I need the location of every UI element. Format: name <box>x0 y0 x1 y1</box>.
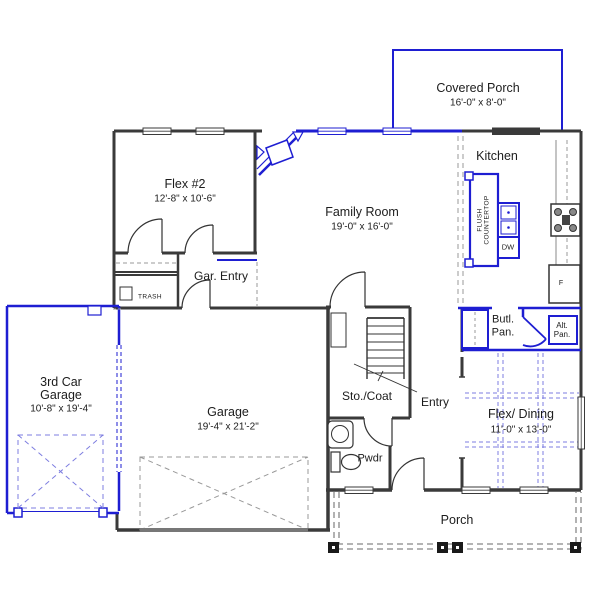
range-cooktop <box>551 204 580 236</box>
pwdr-label: Pwdr <box>357 453 382 466</box>
covered-porch-label: Covered Porch <box>436 81 519 95</box>
refrigerator-box <box>549 265 580 303</box>
flush-countertop-line1: FLUSH <box>477 208 484 231</box>
flex-dining-label: Flex/ Dining <box>488 407 554 421</box>
flex-dining-dims: 11'-0" x 13'-0" <box>491 424 552 436</box>
flush-countertop-note: FLUSH COUNTERTOP <box>477 195 492 244</box>
kitchen-island <box>465 172 519 267</box>
windows <box>143 128 585 494</box>
kitchen-window-solid <box>492 128 540 136</box>
trash-closet-fixture <box>120 287 132 300</box>
flex2-dims: 12'-8" x 10'-6" <box>154 193 216 205</box>
porch-posts <box>328 542 581 553</box>
third-garage-dims: 10'-8" x 19'-4" <box>30 403 92 415</box>
flex2-label: Flex #2 <box>165 177 206 191</box>
dishwasher-label: DW <box>502 244 515 253</box>
trash-label: TRASH <box>138 293 162 300</box>
butlers-pantry-line2: Pan. <box>492 326 515 338</box>
butlers-pantry-label: Butl. Pan. <box>492 313 515 338</box>
entry-label: Entry <box>421 396 449 410</box>
kitchen-label: Kitchen <box>476 149 518 163</box>
door-swings <box>128 219 424 490</box>
butlers-pantry-line1: Butl. <box>492 313 514 325</box>
sto-coat-label: Sto./Coat <box>342 390 392 404</box>
corner-fireplace <box>257 132 303 175</box>
flush-countertop-line2: COUNTERTOP <box>484 195 491 244</box>
alt-pantry-line2: Pan. <box>554 330 570 339</box>
family-room-dims: 19'-0" x 16'-0" <box>331 221 393 233</box>
pantry-door-swing <box>523 317 546 346</box>
third-garage-label-line2: Garage <box>40 388 82 402</box>
garage-label: Garage <box>207 405 249 419</box>
family-room-label: Family Room <box>325 205 399 219</box>
alt-pantry-line1: Alt. <box>556 321 568 330</box>
refrigerator-label: F <box>559 280 563 288</box>
covered-porch-dims: 16'-0" x 8'-0" <box>450 97 506 109</box>
staircase <box>331 313 417 392</box>
floorplan-canvas: Covered Porch 16'-0" x 8'-0" Kitchen Fam… <box>0 0 600 600</box>
gar-entry-label: Gar. Entry <box>194 270 248 284</box>
porch-label: Porch <box>441 513 474 527</box>
garage-dims: 19'-4" x 21'-2" <box>197 421 259 433</box>
alt-pantry-label: Alt. Pan. <box>554 321 570 339</box>
powder-room-fixtures <box>328 421 361 472</box>
